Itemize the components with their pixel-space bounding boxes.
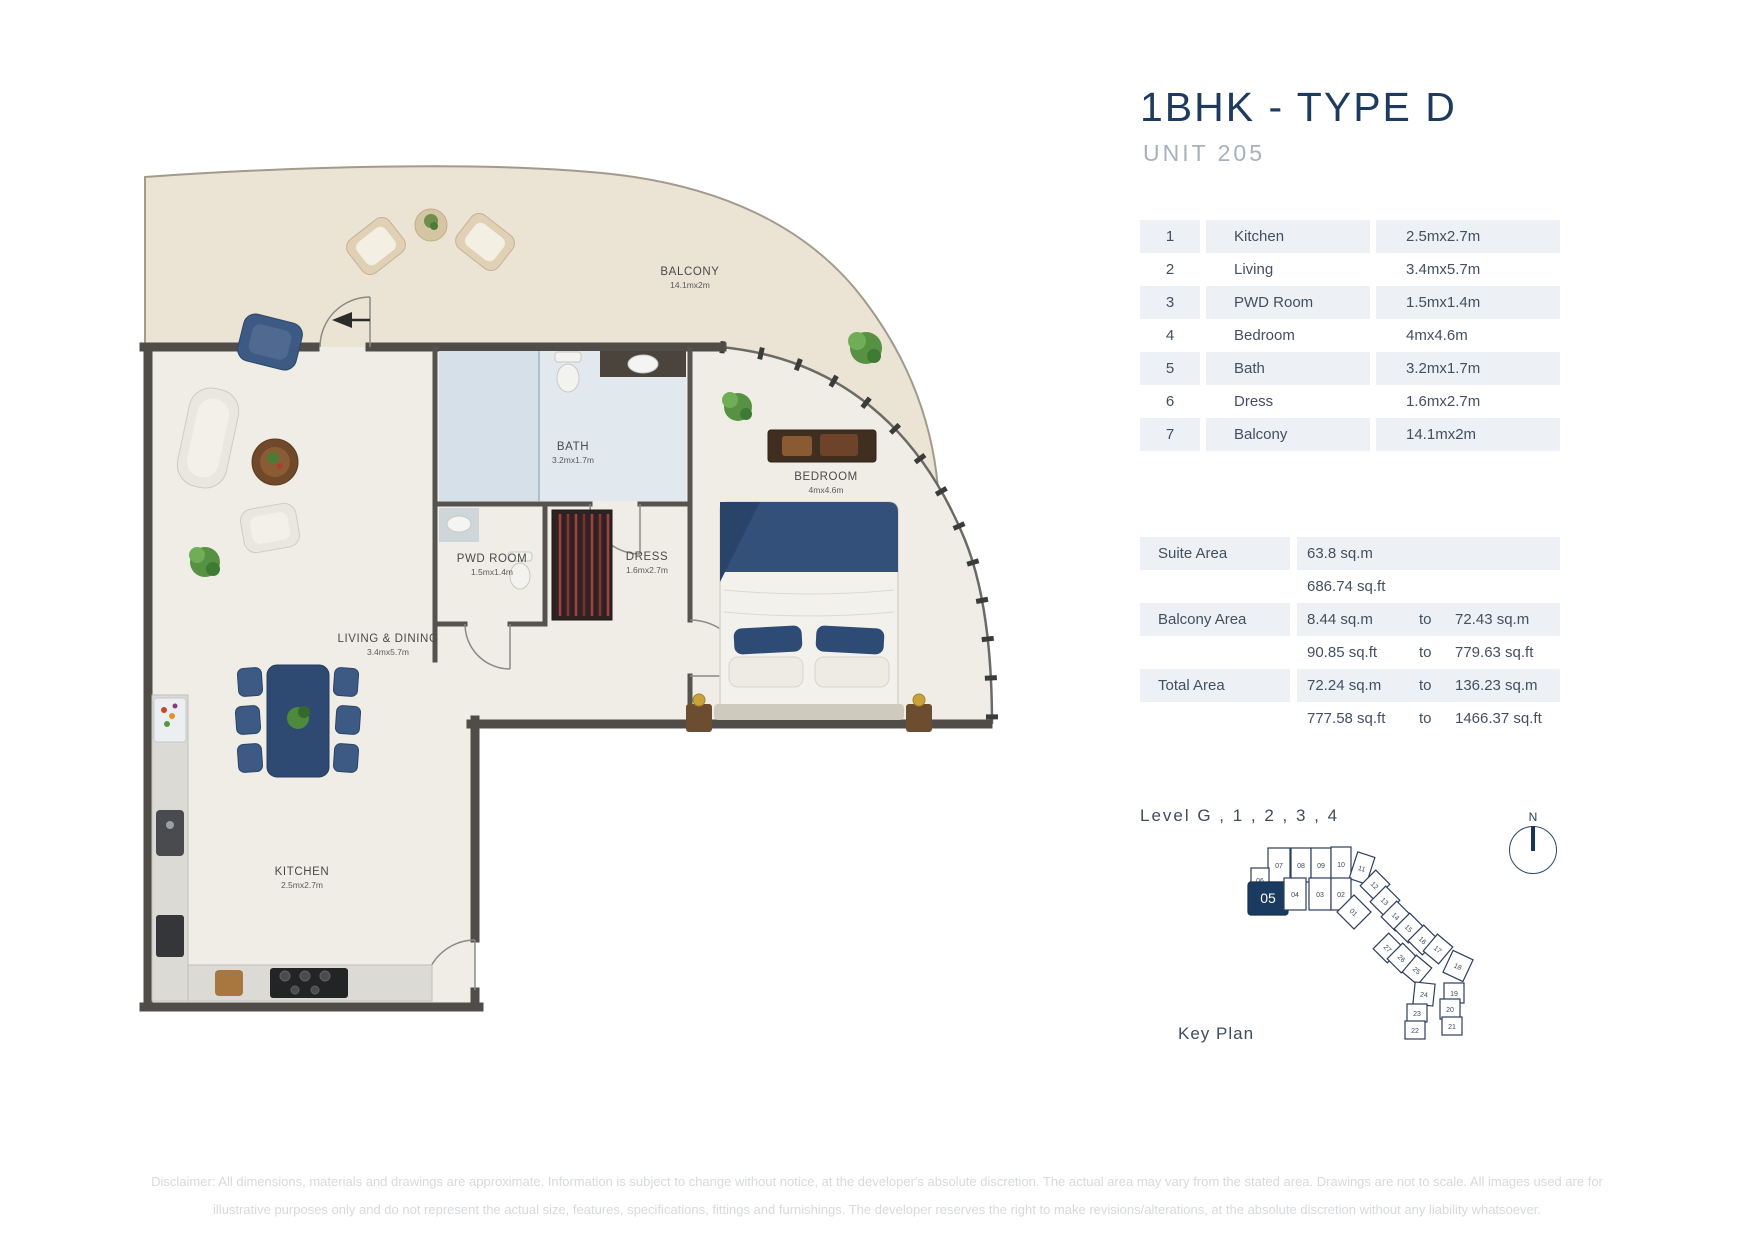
svg-text:23: 23 xyxy=(1413,1011,1421,1018)
table-row: 686.74 sq.ft xyxy=(1140,570,1560,603)
disclaimer-text: Disclaimer: All dimensions, materials an… xyxy=(0,1168,1754,1224)
room-size-cell: 14.1mx2m xyxy=(1376,418,1560,451)
room-dims-pwd: 1.5mx1.4m xyxy=(471,567,513,577)
keyplan-unit: 18 xyxy=(1443,950,1473,981)
area-value: 1466.37 sq.ft xyxy=(1455,710,1560,727)
floorplan-drawing: BALCONY 14.1mx2m BATH 3.2mx1.7m BEDROOM … xyxy=(120,120,1010,1020)
north-label: N xyxy=(1505,810,1561,824)
wardrobe xyxy=(552,510,612,620)
disclaimer-line: Disclaimer: All dimensions, materials an… xyxy=(0,1168,1754,1196)
area-label xyxy=(1140,702,1290,735)
row-number: 2 xyxy=(1140,253,1200,286)
living-armchair xyxy=(239,501,302,554)
area-label xyxy=(1140,636,1290,669)
room-name-cell: Balcony xyxy=(1206,418,1370,451)
north-compass-icon: N xyxy=(1505,810,1561,874)
table-row: 5 Bath 3.2mx1.7m xyxy=(1140,352,1560,385)
svg-text:22: 22 xyxy=(1411,1028,1419,1035)
room-dims-bedroom: 4mx4.6m xyxy=(809,485,844,495)
area-label: Total Area xyxy=(1140,669,1290,702)
table-row: 3 PWD Room 1.5mx1.4m xyxy=(1140,286,1560,319)
svg-text:08: 08 xyxy=(1297,863,1305,870)
keyplan-label: Key Plan xyxy=(1178,1024,1254,1044)
keyplan-unit: 23 xyxy=(1407,1004,1427,1022)
area-label xyxy=(1140,570,1290,603)
table-row: 777.58 sq.ftto1466.37 sq.ft xyxy=(1140,702,1560,735)
area-value: 90.85 sq.ft xyxy=(1307,644,1419,661)
area-value: 72.24 sq.m xyxy=(1307,677,1419,694)
room-dims-balcony: 14.1mx2m xyxy=(670,280,710,290)
keyplan-unit: 21 xyxy=(1442,1017,1462,1035)
area-label: Suite Area xyxy=(1140,537,1290,570)
disclaimer-line: illustrative purposes only and do not re… xyxy=(0,1196,1754,1224)
area-to: to xyxy=(1419,611,1455,628)
table-row: Balcony Area 8.44 sq.mto72.43 sq.m xyxy=(1140,603,1560,636)
room-dims-kitchen: 2.5mx2.7m xyxy=(281,880,323,890)
svg-text:09: 09 xyxy=(1317,863,1325,870)
page-title: 1BHK - TYPE D xyxy=(1140,84,1457,131)
table-row: 2 Living 3.4mx5.7m xyxy=(1140,253,1560,286)
room-dims-living: 3.4mx5.7m xyxy=(367,647,409,657)
key-plan-diagram: 07 08 09 10 11 06 05 04 03 02 01 12 13 1… xyxy=(1225,845,1475,1055)
dining-set xyxy=(235,665,361,777)
svg-text:07: 07 xyxy=(1275,863,1283,870)
room-name-cell: Bedroom xyxy=(1206,319,1370,352)
coffee-table xyxy=(252,439,298,485)
keyplan-unit: 03 xyxy=(1309,878,1331,910)
table-row: 90.85 sq.ftto779.63 sq.ft xyxy=(1140,636,1560,669)
room-size-cell: 3.2mx1.7m xyxy=(1376,352,1560,385)
keyplan-unit: 09 xyxy=(1311,848,1331,882)
svg-text:04: 04 xyxy=(1291,892,1299,899)
row-number: 5 xyxy=(1140,352,1200,385)
level-label: Level G , 1 , 2 , 3 , 4 xyxy=(1140,806,1339,826)
room-name-cell: Kitchen xyxy=(1206,220,1370,253)
compass-circle xyxy=(1509,826,1557,874)
area-value: 72.43 sq.m xyxy=(1455,611,1560,628)
bathroom-fixtures xyxy=(439,351,686,501)
svg-text:05: 05 xyxy=(1260,890,1276,906)
keyplan-unit: 22 xyxy=(1405,1021,1425,1039)
room-label-bath: BATH xyxy=(557,441,589,453)
area-to: to xyxy=(1419,677,1455,694)
svg-text:24: 24 xyxy=(1420,992,1429,1000)
svg-text:21: 21 xyxy=(1448,1024,1456,1031)
compass-needle xyxy=(1531,826,1535,851)
room-name-cell: Bath xyxy=(1206,352,1370,385)
row-number: 4 xyxy=(1140,319,1200,352)
room-dims-bath: 3.2mx1.7m xyxy=(552,455,594,465)
row-number: 6 xyxy=(1140,385,1200,418)
area-to: to xyxy=(1419,710,1455,727)
row-number: 1 xyxy=(1140,220,1200,253)
room-size-cell: 1.6mx2.7m xyxy=(1376,385,1560,418)
room-size-cell: 4mx4.6m xyxy=(1376,319,1560,352)
area-value: 777.58 sq.ft xyxy=(1307,710,1419,727)
room-label-pwd: PWD ROOM xyxy=(457,553,528,565)
room-size-cell: 2.5mx2.7m xyxy=(1376,220,1560,253)
keyplan-unit: 24 xyxy=(1413,982,1435,1006)
svg-text:03: 03 xyxy=(1316,892,1324,899)
svg-text:10: 10 xyxy=(1337,862,1345,869)
svg-text:02: 02 xyxy=(1337,892,1345,899)
bedroom-dresser xyxy=(768,430,876,462)
room-label-dress: DRESS xyxy=(626,551,669,563)
floorplan-brochure-page: BALCONY 14.1mx2m BATH 3.2mx1.7m BEDROOM … xyxy=(0,0,1754,1241)
table-row: Suite Area 63.8 sq.m xyxy=(1140,537,1560,570)
room-size-cell: 3.4mx5.7m xyxy=(1376,253,1560,286)
bed xyxy=(714,502,904,720)
area-value: 779.63 sq.ft xyxy=(1455,644,1560,661)
area-value: 8.44 sq.m xyxy=(1307,611,1419,628)
room-name-cell: PWD Room xyxy=(1206,286,1370,319)
area-table: Suite Area 63.8 sq.m 686.74 sq.ft Balcon… xyxy=(1140,537,1560,735)
area-value: 63.8 sq.m xyxy=(1307,545,1419,562)
dimension-table: 1 Kitchen 2.5mx2.7m 2 Living 3.4mx5.7m 3… xyxy=(1140,220,1560,451)
room-name-cell: Living xyxy=(1206,253,1370,286)
keyplan-unit: 07 xyxy=(1268,848,1290,882)
row-number: 7 xyxy=(1140,418,1200,451)
svg-text:19: 19 xyxy=(1450,991,1458,998)
area-to: to xyxy=(1419,644,1455,661)
room-dims-dress: 1.6mx2.7m xyxy=(626,565,668,575)
room-label-balcony: BALCONY xyxy=(660,266,719,278)
area-value: 686.74 sq.ft xyxy=(1307,578,1419,595)
table-row: 1 Kitchen 2.5mx2.7m xyxy=(1140,220,1560,253)
room-label-kitchen: KITCHEN xyxy=(275,866,330,878)
row-number: 3 xyxy=(1140,286,1200,319)
room-label-living: LIVING & DINING xyxy=(337,633,438,645)
area-label: Balcony Area xyxy=(1140,603,1290,636)
table-row: 7 Balcony 14.1mx2m xyxy=(1140,418,1560,451)
balcony-table xyxy=(415,209,447,241)
keyplan-unit: 04 xyxy=(1284,878,1306,910)
table-row: 4 Bedroom 4mx4.6m xyxy=(1140,319,1560,352)
area-value: 136.23 sq.m xyxy=(1455,677,1560,694)
table-row: Total Area 72.24 sq.mto136.23 sq.m xyxy=(1140,669,1560,702)
keyplan-unit: 08 xyxy=(1291,848,1311,882)
room-name-cell: Dress xyxy=(1206,385,1370,418)
unit-subtitle: UNIT 205 xyxy=(1143,140,1265,167)
keyplan-unit-highlighted: 05 xyxy=(1248,882,1288,915)
keyplan-unit: 20 xyxy=(1440,999,1460,1019)
room-label-bedroom: BEDROOM xyxy=(794,471,858,483)
keyplan-unit: 10 xyxy=(1331,847,1351,881)
room-size-cell: 1.5mx1.4m xyxy=(1376,286,1560,319)
table-row: 6 Dress 1.6mx2.7m xyxy=(1140,385,1560,418)
svg-text:20: 20 xyxy=(1446,1007,1454,1014)
